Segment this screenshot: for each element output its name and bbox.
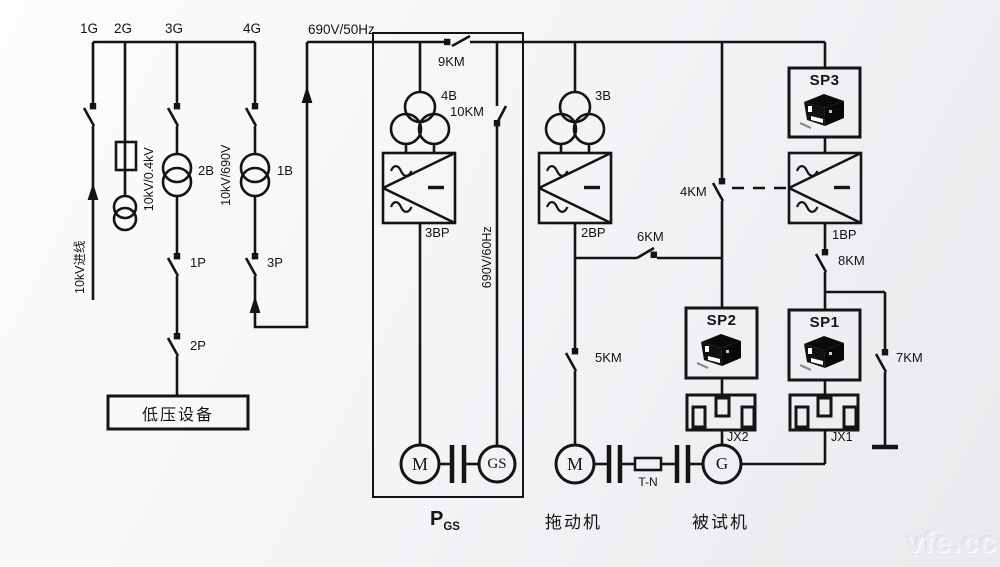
contactor-5km <box>566 348 578 371</box>
breaker-1p-label: 1P <box>190 256 206 269</box>
bus-690v-50hz <box>307 36 825 46</box>
switch-4g <box>246 103 258 126</box>
transformer-1b-label: 1B <box>277 164 293 177</box>
ac-symbol <box>391 202 412 212</box>
contactor-10km <box>494 106 506 126</box>
drive-section <box>539 42 722 483</box>
contactor-6km <box>575 248 722 258</box>
pgs-caption-p: P <box>430 508 443 530</box>
transformer-2b <box>163 154 191 196</box>
breaker-3p <box>246 253 258 276</box>
breaker-1p <box>168 253 180 276</box>
analyzer-sp2-label: SP2 <box>686 312 757 329</box>
contactor-4km-label: 4KM <box>680 185 707 198</box>
ac-symbol <box>797 202 818 212</box>
ac-symbol <box>391 166 412 176</box>
switch-3g <box>168 103 180 126</box>
junction-jx2-box <box>687 395 755 430</box>
torque-sensor-label: T-N <box>634 476 662 488</box>
transformer-2b-ratio: 10kV/0.4kV <box>143 137 156 221</box>
contactor-6km-label: 6KM <box>637 230 664 243</box>
junction-jx1-box <box>790 395 858 430</box>
contactor-8km-label: 8KM <box>838 254 865 267</box>
contactor-8km <box>816 249 828 272</box>
flow-arrow-up <box>88 183 99 200</box>
contactor-9km <box>444 36 470 46</box>
ac-symbol <box>547 166 568 176</box>
transformer-3b-label: 3B <box>595 89 611 102</box>
converter-2bp-label: 2BP <box>581 226 606 239</box>
contactor-7km-label: 7KM <box>896 351 923 364</box>
drive-motor-letter: M <box>556 445 594 483</box>
analyzer-sp1-label: SP1 <box>789 314 860 331</box>
feeder-label-3g: 3G <box>162 22 186 36</box>
contactor-5km-label: 5KM <box>595 351 622 364</box>
breaker-2p-label: 2P <box>190 339 206 352</box>
contactor-9km-label: 9KM <box>438 55 465 68</box>
contactor-4km <box>713 178 725 201</box>
lv-equipment-label: 低压设备 <box>108 396 248 429</box>
converter-3bp <box>383 153 455 223</box>
contactor-10km-label: 10KM <box>450 105 484 118</box>
converter-2bp <box>539 153 611 223</box>
generator-gs-letter: GS <box>479 446 515 482</box>
transformer-2b-label: 2B <box>198 164 214 177</box>
feed-to-690v-bus <box>255 42 307 327</box>
flow-arrow-up <box>250 296 261 313</box>
test-section <box>686 42 898 483</box>
breaker-3p-label: 3P <box>267 256 283 269</box>
converter-1bp-label: 1BP <box>832 228 857 241</box>
drive-caption: 拖动机 <box>545 508 602 533</box>
line-60hz-label: 690V/60Hz <box>481 217 494 297</box>
shaft-coupling <box>439 445 479 483</box>
feeder-label-1g: 1G <box>77 22 101 36</box>
feeder-label-2g: 2G <box>111 22 135 36</box>
motor-m-letter: M <box>401 445 439 483</box>
switch-1g <box>84 103 96 126</box>
pgs-caption: PGS <box>430 508 460 533</box>
torque-sensor-box <box>635 458 661 470</box>
ac-symbol <box>797 166 818 176</box>
pgs-caption-sub: GS <box>443 521 460 533</box>
transformer-1b-ratio: 10kV/690V <box>220 136 233 214</box>
grid-10kv-section <box>84 42 312 429</box>
watermark: vfe.cc <box>906 526 997 560</box>
schematic-canvas: 1G 2G 3G 4G 690V/50Hz 10kV进线 10kV/0.4kV … <box>0 0 1000 567</box>
bus-690v-label: 690V/50Hz <box>308 23 375 37</box>
breaker-2p <box>168 333 180 356</box>
ac-symbol <box>547 202 568 212</box>
feeder-label-4g: 4G <box>240 22 264 36</box>
transformer-1b <box>241 154 269 196</box>
converter-3bp-label: 3BP <box>425 226 450 239</box>
test-caption: 被试机 <box>692 508 749 533</box>
flow-arrow-up <box>302 86 313 103</box>
converter-1bp <box>789 153 861 223</box>
incoming-line-label: 10kV进线 <box>74 227 87 307</box>
junction-jx2-label: JX2 <box>727 431 749 444</box>
analyzer-sp3-label: SP3 <box>789 72 860 89</box>
test-generator-letter: G <box>703 445 741 483</box>
transformer-4b-label: 4B <box>441 89 457 102</box>
junction-jx1-label: JX1 <box>831 431 853 444</box>
